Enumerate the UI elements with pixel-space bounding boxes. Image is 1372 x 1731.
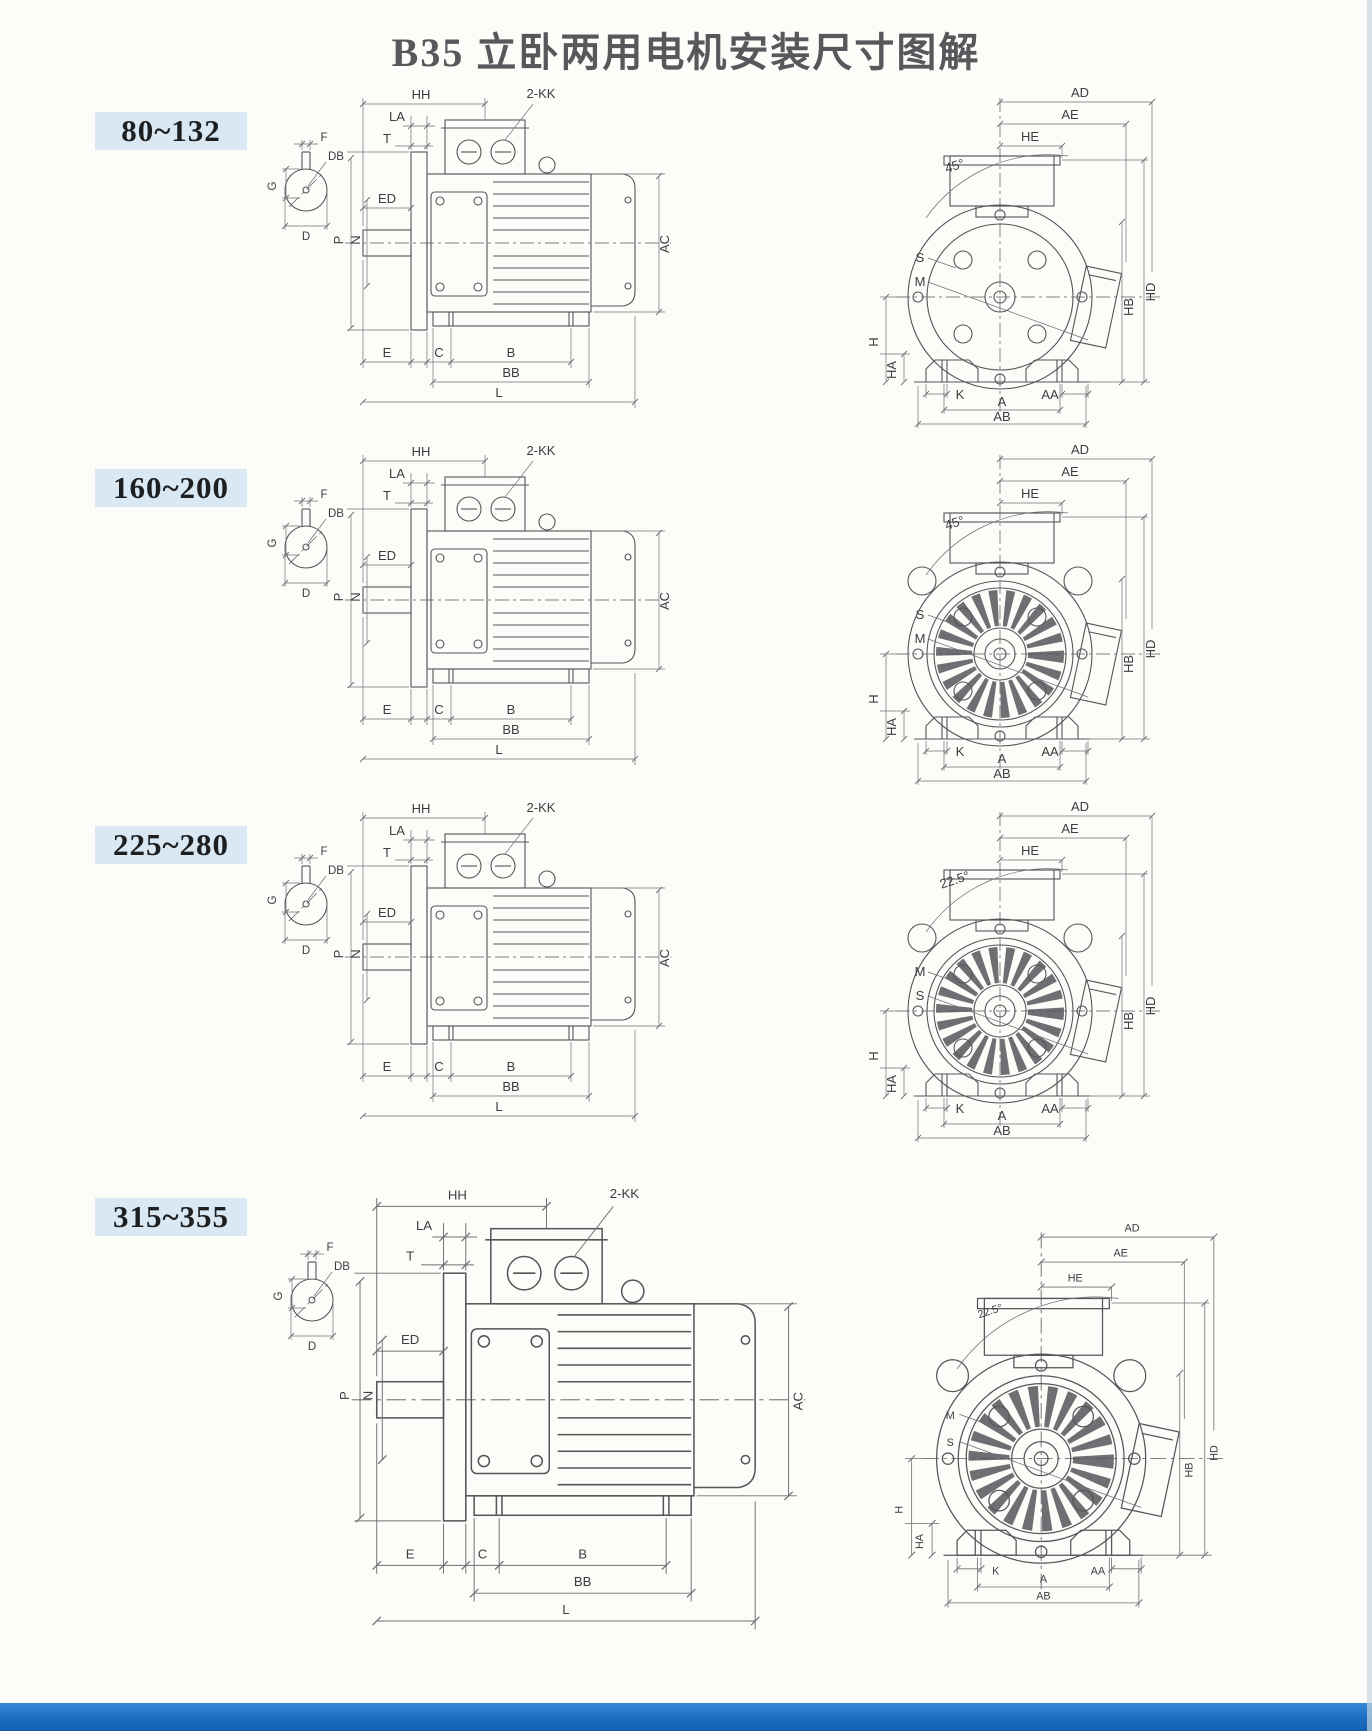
- dim-label-hb: HB: [1121, 1012, 1136, 1030]
- dim-label-ac: AC: [657, 592, 672, 610]
- side-view-dimension-lines: [347, 455, 665, 765]
- dim-label-ac: AC: [657, 949, 672, 967]
- lifting-eye: [539, 514, 555, 530]
- size-section-225-280: 225~280 F DB G D: [0, 786, 1372, 1143]
- side-conduit-box: [1070, 266, 1121, 348]
- side-view-dimension-lines: [347, 812, 665, 1122]
- scan-edge-strip: [1367, 0, 1372, 1731]
- dim-label-ed: ED: [401, 1332, 419, 1347]
- fan-cowl: [694, 1304, 755, 1488]
- dim-label-p: P: [333, 236, 346, 245]
- shaft-dimension-lines: [282, 140, 330, 230]
- dim-label-f: F: [320, 489, 327, 501]
- dim-label-t: T: [383, 131, 391, 146]
- flange-plate: [444, 1273, 466, 1521]
- dim-label-ab: AB: [993, 409, 1010, 424]
- motor-front-view-drawing: AD AE HE 22.5° M S H HA K AA A AB HB HD: [848, 1203, 1240, 1612]
- dim-label-g: G: [267, 538, 279, 547]
- dim-label-ab: AB: [993, 766, 1010, 781]
- dim-label-n: N: [348, 235, 363, 244]
- dim-label-bb: BB: [502, 1079, 519, 1094]
- dim-label-aa: AA: [1091, 1566, 1106, 1578]
- dim-label-ad: AD: [1071, 442, 1089, 457]
- right-foot: [1026, 717, 1078, 739]
- dim-label-hd: HD: [1143, 997, 1158, 1016]
- dim-label-e: E: [383, 1059, 392, 1074]
- foot-base: [474, 1496, 691, 1515]
- dim-label-g: G: [267, 181, 279, 190]
- dim-label-k: K: [992, 1566, 1000, 1578]
- dim-label-hh: HH: [448, 1187, 467, 1202]
- dim-label-t: T: [383, 845, 391, 860]
- dim-label-h: H: [894, 1506, 906, 1514]
- dim-label-e: E: [383, 345, 392, 360]
- sections-container: 80~132 F DB G D: [0, 72, 1372, 1703]
- dim-label-aa: AA: [1041, 744, 1059, 759]
- dim-label-l: L: [562, 1602, 569, 1617]
- dim-label-ae: AE: [1061, 464, 1079, 479]
- dim-label-ad: AD: [1071, 799, 1089, 814]
- dim-label-bb: BB: [574, 1574, 592, 1589]
- dim-label-ha: HA: [884, 718, 899, 736]
- foot-base: [433, 669, 589, 683]
- dim-label-hh: HH: [412, 444, 431, 459]
- dim-label-b: B: [578, 1546, 587, 1561]
- fan-cowl: [591, 174, 635, 306]
- dim-label-e: E: [383, 702, 392, 717]
- dim-label-p: P: [333, 950, 346, 959]
- shaft-section-outline: [285, 866, 327, 925]
- leader-label-upper: S: [916, 250, 925, 265]
- leader-label-upper: M: [946, 1410, 955, 1422]
- dim-label-ed: ED: [378, 548, 396, 563]
- dim-label-e: E: [406, 1546, 415, 1561]
- side-conduit-box: [1070, 623, 1121, 705]
- page-title: B35 立卧两用电机安装尺寸图解: [0, 0, 1372, 72]
- motor-side-view-drawing: HH 2-KK LA T ED P N AC E C B BB L: [335, 1173, 815, 1660]
- dim-label-d: D: [302, 231, 310, 243]
- size-section-315-355: 315~355 F DB G D: [0, 1143, 1372, 1703]
- dim-label-ha: HA: [884, 1075, 899, 1093]
- dim-label-hh: HH: [412, 87, 431, 102]
- dim-label-k: K: [956, 1101, 965, 1116]
- dim-label-a: A: [998, 751, 1007, 766]
- dim-label-t: T: [383, 488, 391, 503]
- dim-label-d: D: [302, 945, 310, 957]
- dim-label-2kk: 2-KK: [527, 800, 556, 815]
- dim-label-c: C: [434, 702, 443, 717]
- angle-label: 22.5°: [976, 1302, 1004, 1321]
- motor-side-view-drawing: HH 2-KK LA T ED P N AC E C B BB L: [333, 794, 678, 1144]
- dim-label-he: HE: [1021, 486, 1039, 501]
- right-foot: [1071, 1530, 1130, 1555]
- lifting-eye: [539, 871, 555, 887]
- leader-label-lower: S: [947, 1437, 954, 1449]
- dim-label-ac: AC: [657, 235, 672, 253]
- dim-label-ed: ED: [378, 191, 396, 206]
- side-view-outline: [352, 1229, 806, 1521]
- dim-label-hb: HB: [1183, 1462, 1195, 1477]
- dim-label-h: H: [866, 337, 881, 346]
- size-range-badge: 225~280: [95, 826, 247, 864]
- side-view-dimension-lines: [347, 98, 665, 408]
- motor-front-view-drawing: AD AE HE 45° S M H HA K AA A AB HB HD: [830, 429, 1175, 789]
- shaft-dimension-lines: [288, 1250, 336, 1340]
- angle-label: 45°: [943, 156, 966, 176]
- footer-blue-bar: [0, 1703, 1372, 1731]
- dim-label-bb: BB: [502, 365, 519, 380]
- foot-base: [433, 312, 589, 326]
- leader-label-upper: S: [916, 607, 925, 622]
- lifting-eye: [539, 157, 555, 173]
- dim-label-b: B: [507, 345, 516, 360]
- dim-label-ab: AB: [993, 1123, 1010, 1138]
- side-view-outline: [345, 834, 671, 1044]
- motor-front-view-drawing: AD AE HE 45° S M H HA K AA A AB HB HD: [830, 72, 1175, 432]
- dim-label-f: F: [320, 846, 327, 858]
- dim-label-ae: AE: [1061, 107, 1079, 122]
- leader-label-lower: M: [915, 274, 926, 289]
- leader-label-lower: M: [915, 631, 926, 646]
- dim-label-hb: HB: [1121, 298, 1136, 316]
- dim-label-h: H: [866, 1051, 881, 1060]
- dim-label-ed: ED: [378, 905, 396, 920]
- dim-label-la: LA: [389, 109, 405, 124]
- dim-label-hd: HD: [1143, 283, 1158, 302]
- dim-label-la: LA: [389, 466, 405, 481]
- motor-side-view-drawing: HH 2-KK LA T ED P N AC E C B BB L: [333, 80, 678, 430]
- motor-front-view-drawing: AD AE HE 22.5° M S H HA K AA A AB HB HD: [830, 786, 1175, 1146]
- dim-label-2kk: 2-KK: [527, 86, 556, 101]
- side-conduit-box: [1121, 1424, 1179, 1517]
- dim-label-hd: HD: [1143, 640, 1158, 659]
- dim-label-n: N: [348, 592, 363, 601]
- right-foot: [1026, 360, 1078, 382]
- dim-label-d: D: [308, 1341, 316, 1353]
- flange-plate: [411, 509, 427, 687]
- lifting-eye: [622, 1280, 644, 1302]
- dim-label-ad: AD: [1125, 1222, 1140, 1234]
- flange-plate: [411, 866, 427, 1044]
- side-conduit-box: [1070, 980, 1121, 1062]
- dim-label-ad: AD: [1071, 85, 1089, 100]
- dim-label-k: K: [956, 744, 965, 759]
- side-view-dimension-lines: [354, 1198, 796, 1629]
- dim-label-ha: HA: [884, 361, 899, 379]
- dim-label-l: L: [495, 742, 502, 757]
- dim-label-bb: BB: [502, 722, 519, 737]
- dim-label-a: A: [998, 394, 1007, 409]
- dim-label-g: G: [267, 895, 279, 904]
- leader-label-lower: S: [916, 988, 925, 1003]
- dim-label-ac: AC: [790, 1392, 805, 1411]
- foot-base: [433, 1026, 589, 1040]
- terminal-box-front: [950, 156, 1054, 206]
- dim-label-ab: AB: [1036, 1591, 1050, 1603]
- dim-label-la: LA: [389, 823, 405, 838]
- dim-label-h: H: [866, 694, 881, 703]
- dim-label-ae: AE: [1061, 821, 1079, 836]
- dim-label-c: C: [478, 1546, 488, 1561]
- fan-cowl: [591, 888, 635, 1020]
- shaft-section-outline: [285, 509, 327, 568]
- dim-label-n: N: [348, 949, 363, 958]
- dim-label-aa: AA: [1041, 1101, 1059, 1116]
- size-range-badge: 80~132: [95, 112, 247, 150]
- dim-label-he: HE: [1068, 1272, 1083, 1284]
- size-range-badge: 160~200: [95, 469, 247, 507]
- dim-label-b: B: [507, 702, 516, 717]
- dim-label-k: K: [956, 387, 965, 402]
- dim-label-c: C: [434, 1059, 443, 1074]
- dim-label-ha: HA: [914, 1533, 926, 1549]
- leader-label-upper: M: [915, 964, 926, 979]
- terminal-box-front: [950, 513, 1054, 563]
- flange-plate: [411, 152, 427, 330]
- dim-label-t: T: [406, 1249, 414, 1264]
- dim-label-hb: HB: [1121, 655, 1136, 673]
- size-range-badge: 315~355: [95, 1198, 247, 1236]
- dim-label-he: HE: [1021, 843, 1039, 858]
- dim-label-b: B: [507, 1059, 516, 1074]
- dim-label-aa: AA: [1041, 387, 1059, 402]
- dim-label-n: N: [361, 1391, 376, 1401]
- dim-label-c: C: [434, 345, 443, 360]
- dim-label-d: D: [302, 588, 310, 600]
- dim-label-a: A: [998, 1108, 1007, 1123]
- dim-label-2kk: 2-KK: [610, 1186, 640, 1201]
- motor-side-view-drawing: HH 2-KK LA T ED P N AC E C B BB L: [333, 437, 678, 787]
- dim-label-g: G: [273, 1291, 285, 1300]
- dim-label-2kk: 2-KK: [527, 443, 556, 458]
- side-view-outline: [345, 120, 671, 330]
- dim-label-hh: HH: [412, 801, 431, 816]
- fan-cowl: [591, 531, 635, 663]
- dim-label-l: L: [495, 385, 502, 400]
- angle-label: 45°: [943, 513, 966, 533]
- angle-label: 22.5°: [938, 868, 972, 892]
- size-section-80-132: 80~132 F DB G D: [0, 72, 1372, 429]
- dim-label-f: F: [326, 1242, 333, 1254]
- shaft-section-outline: [285, 152, 327, 211]
- dim-label-p: P: [337, 1391, 352, 1400]
- size-section-160-200: 160~200 F DB G D: [0, 429, 1372, 786]
- side-view-outline: [345, 477, 671, 687]
- dim-label-la: LA: [416, 1218, 432, 1233]
- dim-label-p: P: [333, 593, 346, 602]
- dim-label-he: HE: [1021, 129, 1039, 144]
- dim-label-f: F: [320, 132, 327, 144]
- dim-label-a: A: [1040, 1573, 1048, 1585]
- dim-label-ae: AE: [1113, 1247, 1127, 1259]
- dim-label-l: L: [495, 1099, 502, 1114]
- shaft-section-outline: [291, 1262, 333, 1321]
- right-foot: [1026, 1074, 1078, 1096]
- dim-label-hd: HD: [1208, 1445, 1220, 1461]
- shaft-dimension-lines: [282, 854, 330, 944]
- shaft-dimension-lines: [282, 497, 330, 587]
